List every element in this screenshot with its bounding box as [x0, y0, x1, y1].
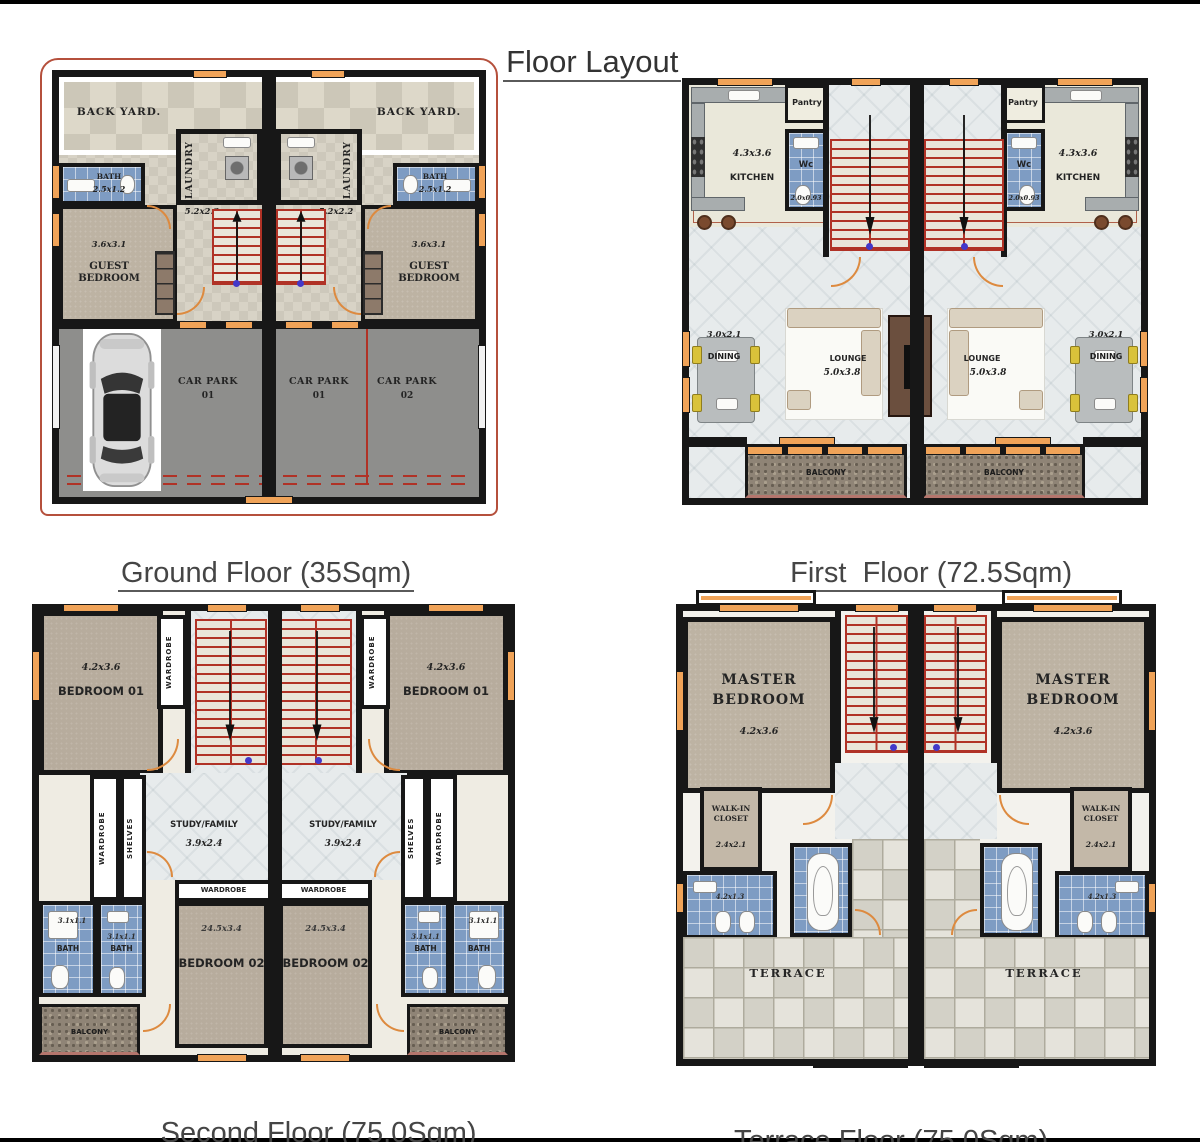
stair-hall-wall	[991, 611, 997, 763]
door-arc-icon	[376, 1004, 404, 1032]
wardrobe-strip-horizontal: WARDROBE	[275, 880, 372, 902]
room-terrace-right	[924, 937, 1149, 1059]
second-building: 4.2x3.6 BEDROOM 01 4.2x3.6 BEDROOM 01 WA…	[32, 604, 515, 1062]
window-icon	[478, 165, 486, 199]
room-balcony-left: BALCONY	[745, 444, 907, 498]
wardrobe2-label: WARDROBE	[179, 887, 268, 895]
door-arc-icon	[831, 257, 861, 287]
sink-icon	[728, 90, 760, 101]
window-icon	[949, 78, 979, 86]
room-laundry-right: LAUNDRY	[276, 129, 362, 205]
second-floor-caption: Second Floor (75.0Sqm)	[30, 1084, 575, 1142]
dining-table-icon	[697, 337, 755, 423]
basin-icon	[418, 911, 440, 923]
first-building: 4.3x3.6 KITCHEN 4.3x3.6 KITCHEN Pantry P…	[682, 78, 1148, 505]
room-balcony-left: BALCONY	[39, 1004, 140, 1055]
door-arc-icon	[803, 795, 833, 825]
second-floor-plan: 4.2x3.6 BEDROOM 01 4.2x3.6 BEDROOM 01 WA…	[30, 598, 518, 1068]
study-dim-right: 3.9x2.4	[279, 839, 407, 849]
bedroom1-dim-right: 4.2x3.6	[384, 663, 508, 674]
laundry-label-left: LAUNDRY	[185, 138, 195, 202]
stool-icon	[1118, 215, 1133, 230]
sofa-icon	[787, 308, 881, 328]
bedroom2-dim-right: 24.5x3.4	[279, 925, 372, 935]
shelves-strip: SHELVES	[401, 775, 427, 901]
bedroom2-label-left: BEDROOM 02	[175, 957, 268, 970]
room-bath-outer-right: 3.1x1.1 BATH	[450, 901, 508, 997]
roof-ledge-rail	[701, 596, 811, 600]
master-label-left-2: BEDROOM	[683, 693, 835, 709]
front-wall	[689, 437, 747, 447]
carpark-num-3: 02	[362, 391, 452, 401]
stair-hall-wall	[185, 611, 191, 773]
sliding-door-icon	[285, 321, 313, 329]
stool-icon	[721, 215, 736, 230]
toilet-icon	[51, 965, 69, 989]
bath-label-left: BATH	[89, 173, 129, 181]
wardrobe-strip-horizontal: WARDROBE	[175, 880, 272, 902]
lounge-label-left: LOUNGE	[815, 355, 881, 364]
bath-label-right: BATH	[415, 173, 455, 181]
window-icon	[52, 165, 60, 199]
wardrobe-label: WARDROBE	[166, 623, 174, 701]
toilet-icon	[478, 965, 496, 989]
garage-opening	[478, 345, 486, 429]
stair-newel-dot	[245, 757, 252, 764]
toilet-icon	[109, 967, 125, 989]
window-icon	[933, 604, 977, 612]
laundry-label-right: LAUNDRY	[343, 138, 353, 202]
washer-icon	[289, 156, 313, 180]
stair-arrow-down-icon	[865, 115, 875, 235]
second-floor-caption-text: Second Floor (75.0Sqm)	[158, 1117, 480, 1142]
stair-newel-dot	[297, 280, 304, 287]
ground-floor-caption-text: Ground Floor (35Sqm)	[118, 557, 414, 592]
bath-dim: 3.1x1.1	[460, 917, 506, 925]
wic-label-1: WALK-IN	[1074, 805, 1128, 813]
bottom-step-wall	[813, 1059, 908, 1068]
bedroom1-dim-left: 4.2x3.6	[39, 663, 163, 674]
bath-label: BATH	[43, 945, 93, 953]
window-icon	[300, 1054, 350, 1062]
shelves-label: SHELVES	[408, 785, 416, 891]
door-arc-icon	[147, 739, 179, 771]
front-wall	[1083, 437, 1141, 447]
room-terrace-left	[683, 937, 908, 1059]
window-icon	[855, 604, 899, 612]
window-icon	[207, 604, 247, 612]
sofa-icon	[949, 308, 1043, 328]
wardrobe-strip: WARDROBE	[90, 775, 120, 901]
bath-label: BATH	[454, 945, 504, 953]
room-balcony-right: BALCONY	[923, 444, 1085, 498]
lounge-label-right: LOUNGE	[949, 355, 1015, 364]
door-arc-icon	[143, 1004, 171, 1032]
window-icon	[311, 70, 345, 78]
bath-dim-left: 4.2x1.3	[687, 893, 773, 901]
car-icon	[83, 329, 161, 491]
wardrobe-strip: WARDROBE	[157, 615, 187, 709]
door-arc-icon	[999, 795, 1029, 825]
wc-dim-right: 2.0x0.93	[1007, 195, 1041, 202]
chair-icon	[1128, 394, 1138, 412]
window-icon	[719, 604, 799, 612]
window-icon	[851, 78, 881, 86]
stair-arrow-down-icon	[312, 631, 322, 741]
window-icon	[63, 604, 119, 612]
first-floor-plan: 4.3x3.6 KITCHEN 4.3x3.6 KITCHEN Pantry P…	[676, 70, 1154, 525]
roof-ledge-rail	[1007, 596, 1117, 600]
window-icon	[32, 651, 40, 701]
toilet-icon	[1101, 911, 1117, 933]
terrace-floor-plan: MASTER BEDROOM 4.2x3.6 MASTER BEDROOM 4.…	[670, 592, 1162, 1070]
bedroom1-label-right: BEDROOM 01	[384, 685, 508, 698]
stair-arrow-down-icon	[959, 115, 969, 235]
master-label-left-1: MASTER	[683, 673, 835, 689]
guest-dim-left: 3.6x3.1	[59, 241, 159, 251]
terrace-label-right: TERRACE	[969, 967, 1119, 980]
stair-arrow-up-icon	[232, 211, 242, 283]
shelves-label: SHELVES	[127, 785, 135, 891]
stair-newel-dot	[866, 243, 873, 250]
window-icon	[676, 671, 684, 731]
master-label-right-1: MASTER	[997, 673, 1149, 689]
party-wall	[268, 611, 282, 1055]
bath-dim-left: 2.5x1.2	[85, 185, 133, 194]
car-image-frame	[83, 329, 161, 491]
guest-label-left-2: BEDROOM	[59, 273, 159, 284]
sliding-door-icon	[331, 321, 359, 329]
room-pantry-right: Pantry	[1001, 85, 1045, 123]
terrace-building: MASTER BEDROOM 4.2x3.6 MASTER BEDROOM 4.…	[676, 604, 1156, 1066]
sliding-door-icon	[225, 321, 253, 329]
room-balcony-right: BALCONY	[407, 1004, 508, 1055]
wic-label-2: CLOSET	[704, 815, 758, 823]
bathtub-basin-icon	[1007, 866, 1027, 916]
stair-newel-dot	[233, 280, 240, 287]
master-dim-right: 4.2x3.6	[997, 727, 1149, 738]
first-floor-caption-text: First Floor (72.5Sqm)	[787, 557, 1075, 592]
bath-dim: 3.1x1.1	[405, 933, 446, 941]
window-icon	[52, 213, 60, 247]
door-arc-icon	[368, 739, 400, 771]
wic-dim: 2.4x2.1	[704, 841, 758, 849]
window-icon	[717, 78, 773, 86]
room-wc-right: Wc 2.0x0.93	[1003, 129, 1045, 211]
basin-icon	[793, 137, 819, 149]
study-dim-left: 3.9x2.4	[140, 839, 268, 849]
toilet-icon	[715, 911, 731, 933]
room-wc-left: Wc 2.0x0.93	[785, 129, 827, 211]
garage-opening	[52, 345, 60, 429]
window-icon	[1148, 671, 1156, 731]
wardrobe-cabinet-icon	[155, 251, 175, 315]
room-bath-outer-left: 3.1x1.1 BATH	[39, 901, 97, 997]
breakfast-counter	[1085, 197, 1139, 211]
basin-icon	[1011, 137, 1037, 149]
room-tub-left	[790, 843, 852, 937]
balcony-rail-icon	[925, 446, 1083, 455]
dining-dim-left: 3.0x2.1	[691, 331, 757, 341]
laundry-sink-icon	[287, 137, 315, 148]
sink-icon	[1070, 90, 1102, 101]
back-yard-label-right: BACK YARD.	[363, 107, 475, 119]
bath-label: BATH	[101, 945, 142, 953]
carpark-num-1: 01	[163, 391, 253, 401]
lounge-dim-right: 5.0x3.8	[955, 368, 1021, 378]
shelves-strip: SHELVES	[120, 775, 146, 901]
window-icon	[1033, 604, 1113, 612]
back-yard-label-left: BACK YARD.	[63, 107, 175, 119]
toilet-icon	[1077, 911, 1093, 933]
chair-icon	[750, 394, 760, 412]
balcony-label-left: BALCONY	[42, 1029, 137, 1037]
bath-dim-right: 2.5x1.2	[411, 185, 459, 194]
stool-icon	[697, 215, 712, 230]
room-bath-inner-left: 3.1x1.1 BATH	[97, 901, 146, 997]
toilet-icon	[739, 911, 755, 933]
carpark-label-3: CAR PARK	[362, 377, 452, 388]
guest-dim-right: 3.6x3.1	[379, 241, 479, 251]
window-icon	[1148, 883, 1156, 913]
lounge-dim-left: 5.0x3.8	[809, 368, 875, 378]
stair-newel-dot	[933, 744, 940, 751]
dining-table-icon	[1075, 337, 1133, 423]
wardrobe-strip: WARDROBE	[360, 615, 390, 709]
window-icon	[197, 1054, 247, 1062]
guest-label-left-1: GUEST	[59, 261, 159, 272]
guest-label-right-1: GUEST	[379, 261, 479, 272]
stair-hall-wall	[835, 611, 841, 763]
ground-building: BACK YARD. BACK YARD. LAUNDRY LAUNDRY 5.…	[52, 70, 486, 504]
balcony-label-left: BALCONY	[748, 469, 904, 477]
stair-hall-wall	[356, 611, 362, 773]
balcony-label-right: BALCONY	[926, 469, 1082, 477]
party-wall	[908, 611, 924, 1059]
terrace-floor-caption: Terrace Floor (75.0Sqm)	[640, 1092, 1110, 1142]
armchair-icon	[787, 390, 811, 410]
bedroom2-label-right: BEDROOM 02	[279, 957, 372, 970]
stair-newel-dot	[315, 757, 322, 764]
wardrobe-label: WARDROBE	[436, 785, 444, 891]
room-laundry-left: LAUNDRY	[176, 129, 262, 205]
dining-dim-right: 3.0x2.1	[1073, 331, 1139, 341]
room-bath-left: 4.2x1.3	[683, 871, 777, 939]
master-dim-left: 4.2x3.6	[683, 727, 835, 738]
carpark-label-1: CAR PARK	[163, 377, 253, 388]
window-icon	[507, 651, 515, 701]
door-arc-icon	[973, 257, 1003, 287]
plate-icon	[716, 398, 738, 410]
laundry-sink-icon	[223, 137, 251, 148]
room-bath-left: BATH 2.5x1.2	[59, 163, 145, 205]
wardrobe2-label: WARDROBE	[279, 887, 368, 895]
ground-floor-plan: BACK YARD. BACK YARD. LAUNDRY LAUNDRY 5.…	[38, 56, 500, 518]
wc-label-right: Wc	[1007, 161, 1041, 171]
window-icon	[1140, 377, 1148, 413]
master-label-right-2: BEDROOM	[997, 693, 1149, 709]
window-icon	[428, 604, 484, 612]
window-icon	[193, 70, 227, 78]
wardrobe-label: WARDROBE	[99, 785, 107, 891]
bathtub-icon	[1001, 853, 1033, 931]
window-icon	[478, 213, 486, 247]
chair-icon	[1070, 394, 1080, 412]
carpark-label-2: CAR PARK	[274, 377, 364, 388]
kitchen-counter	[1029, 87, 1139, 103]
wc-label-left: Wc	[789, 161, 823, 171]
wic-label-2: CLOSET	[1074, 815, 1128, 823]
guest-label-right-2: BEDROOM	[379, 273, 479, 284]
window-icon	[1057, 78, 1113, 86]
stair-arrow-down-icon	[953, 627, 963, 733]
wardrobe-cabinet-icon	[363, 251, 383, 315]
stair-hall-wall	[823, 85, 829, 257]
room-walkin-closet-right: WALK-IN CLOSET 2.4x2.1	[1070, 787, 1132, 871]
bedroom1-label-left: BEDROOM 01	[39, 685, 163, 698]
basin-icon	[107, 911, 129, 923]
window-icon	[676, 883, 684, 913]
bathtub-icon	[807, 853, 839, 931]
stair-arrow-down-icon	[869, 627, 879, 733]
stair-newel-dot	[890, 744, 897, 751]
pantry-label-right: Pantry	[1004, 99, 1042, 108]
bath-dim: 3.1x1.1	[49, 917, 95, 925]
bath-dim-right: 4.2x1.3	[1059, 893, 1145, 901]
toilet-icon	[422, 967, 438, 989]
chair-icon	[692, 394, 702, 412]
breakfast-counter	[691, 197, 745, 211]
stair-arrow-up-icon	[296, 211, 306, 283]
pantry-label-left: Pantry	[788, 99, 826, 108]
room-bath-right: BATH 2.5x1.2	[393, 163, 479, 205]
party-wall	[262, 77, 276, 497]
bottom-step-wall	[924, 1059, 1019, 1068]
window-icon	[300, 604, 340, 612]
study-label-right: STUDY/FAMILY	[279, 821, 407, 831]
stair-arrow-down-icon	[225, 631, 235, 741]
basin-icon	[693, 881, 717, 893]
wardrobe-label: WARDROBE	[369, 623, 377, 701]
bath-dim: 3.1x1.1	[101, 933, 142, 941]
dining-label-right: DINING	[1075, 353, 1137, 362]
terrace-label-left: TERRACE	[713, 967, 863, 980]
wardrobe-strip: WARDROBE	[427, 775, 457, 901]
balcony-label-right: BALCONY	[410, 1029, 505, 1037]
bathtub-basin-icon	[813, 866, 833, 916]
top-border-line	[0, 0, 1200, 4]
plate-icon	[1094, 398, 1116, 410]
page-title-text: Floor Layout	[503, 44, 681, 82]
window-icon	[682, 331, 690, 367]
room-tub-right	[980, 843, 1042, 937]
room-bath-inner-right: 3.1x1.1 BATH	[401, 901, 450, 997]
balcony-rail-icon	[747, 446, 905, 455]
entry-door-icon	[245, 496, 293, 504]
party-wall	[910, 85, 924, 498]
room-walkin-closet-left: WALK-IN CLOSET 2.4x2.1	[700, 787, 762, 871]
stair-newel-dot	[961, 243, 968, 250]
washer-icon	[225, 156, 249, 180]
wc-dim-left: 2.0x0.93	[789, 195, 823, 202]
wic-label-1: WALK-IN	[704, 805, 758, 813]
carpark-num-2: 01	[274, 391, 364, 401]
armchair-icon	[1019, 390, 1043, 410]
bedroom2-dim-left: 24.5x3.4	[175, 925, 268, 935]
study-label-left: STUDY/FAMILY	[140, 821, 268, 831]
room-bath-right: 4.2x1.3	[1055, 871, 1149, 939]
dining-label-left: DINING	[693, 353, 755, 362]
window-icon	[682, 377, 690, 413]
basin-icon	[1115, 881, 1139, 893]
stool-icon	[1094, 215, 1109, 230]
bath-label: BATH	[405, 945, 446, 953]
terrace-floor-caption-text: Terrace Floor (75.0Sqm)	[731, 1125, 1051, 1142]
floor-layout-image: Floor Layout BACK YARD. BACK YARD. LAUND…	[0, 0, 1200, 1142]
window-icon	[1140, 331, 1148, 367]
wic-dim: 2.4x2.1	[1074, 841, 1128, 849]
carpark-divider-line	[366, 329, 368, 485]
sliding-door-icon	[179, 321, 207, 329]
